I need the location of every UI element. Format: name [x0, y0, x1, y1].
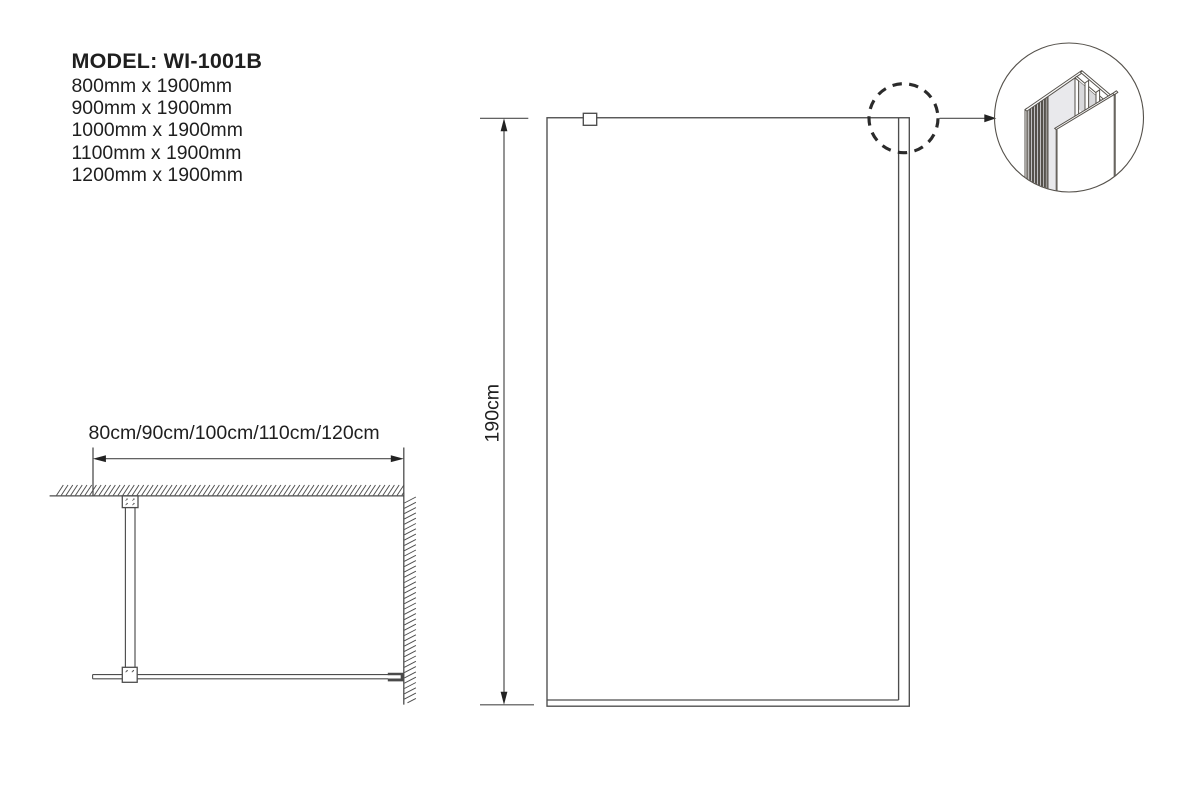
svg-text:190cm: 190cm — [482, 384, 504, 443]
